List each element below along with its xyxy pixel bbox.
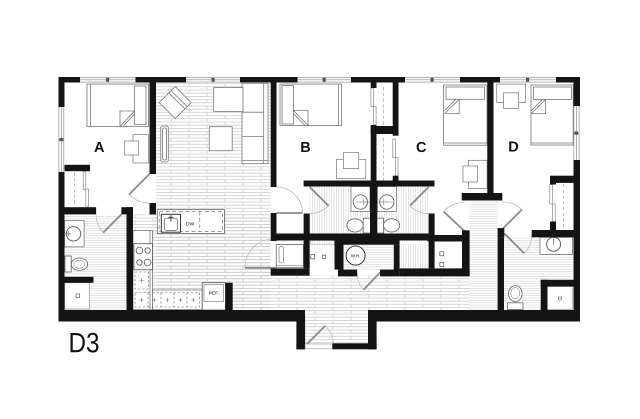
svg-text:W.H.: W.H. [351,253,361,258]
svg-text:DW: DW [186,221,195,227]
svg-text:D: D [508,139,518,155]
svg-text:B: B [300,140,310,156]
svg-text:A: A [94,140,105,156]
svg-text:REF.: REF. [209,290,219,295]
svg-text:C: C [416,140,427,156]
svg-text:D3: D3 [68,327,99,358]
